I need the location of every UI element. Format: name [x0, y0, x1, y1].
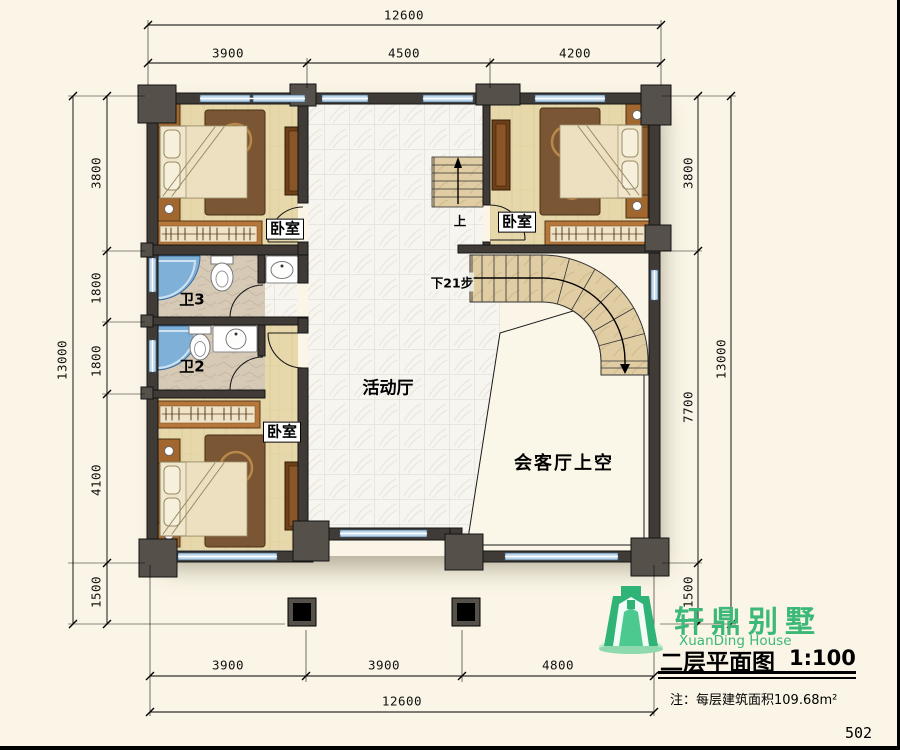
toilet-tank	[189, 326, 211, 334]
title-underline-2	[658, 677, 856, 679]
sink	[271, 262, 293, 279]
dim-left-seg: 1800	[89, 272, 104, 304]
headboard	[642, 127, 648, 195]
room-label-living-void: 会客厅上空	[514, 449, 614, 475]
dim-top-total: 12600	[384, 8, 424, 23]
room-label-bath2: 卫2	[179, 356, 204, 377]
room-label-bath3: 卫3	[179, 289, 204, 310]
room-label-bedroom-top-right: 卧室	[498, 212, 536, 233]
pillow	[164, 130, 180, 158]
drawing-scale: 1:100	[789, 646, 856, 670]
room-label-bedroom-bottom: 卧室	[263, 422, 301, 443]
columns	[288, 598, 480, 626]
dim-top-seg: 3900	[212, 46, 244, 61]
pillow	[164, 466, 180, 494]
room-label-activity-hall: 活动厅	[363, 374, 414, 399]
dim-top-seg: 4200	[559, 46, 591, 61]
dim-top-seg: 4500	[388, 46, 420, 61]
pillow	[622, 129, 638, 157]
dim-left-seg: 1800	[89, 345, 104, 377]
vestibule-floor	[265, 325, 298, 398]
dim-right-seg: 7700	[681, 391, 696, 423]
stair-up-label: 上	[453, 211, 468, 230]
area-note: 注：每层建筑面积109.68m²	[670, 689, 837, 708]
dim-left-seg: 3800	[89, 157, 104, 189]
floor-plan-sheet: 12600 3900 4500 4200 3900 3900 4800 1260…	[0, 0, 900, 750]
stair-down-label: 下21步	[430, 273, 474, 292]
dim-left-total: 13000	[55, 340, 70, 380]
title-underline	[658, 671, 856, 674]
dim-bottom-seg: 3900	[368, 658, 400, 673]
dim-left-seg: 4100	[89, 464, 104, 496]
sheet-border-bottom	[0, 746, 900, 750]
dim-right-total: 13000	[714, 339, 729, 379]
sink	[226, 329, 246, 349]
dim-right-seg: 3800	[681, 157, 696, 189]
column-core	[293, 603, 311, 621]
dim-bottom-seg: 3900	[212, 658, 244, 673]
logo-house-icon	[599, 586, 663, 654]
dim-bottom-total: 12600	[382, 694, 422, 709]
straight-stair	[432, 157, 483, 207]
dim-left-seg: 1500	[89, 576, 104, 608]
dim-bottom-seg: 4800	[542, 658, 574, 673]
room-label-bedroom-top-left: 卧室	[266, 219, 304, 240]
page-number: 502	[845, 724, 872, 742]
column-core	[457, 603, 475, 621]
